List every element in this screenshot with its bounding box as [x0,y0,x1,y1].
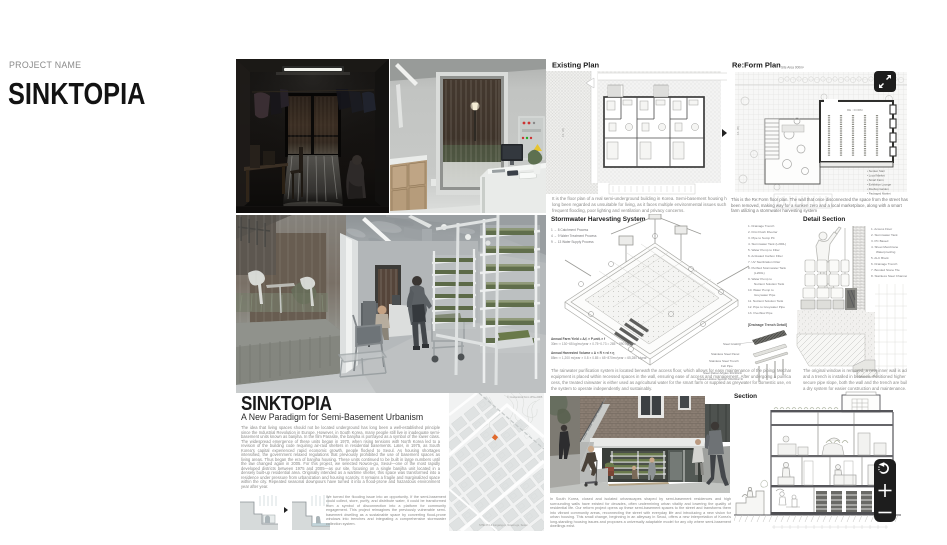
svg-text:9. Water Pump to: 9. Water Pump to [748,277,772,281]
svg-text:30m² × 130~65 kg/m²/year × 0.7: 30m² × 130~65 kg/m²/year × 0.75~0.73 = 2… [551,342,637,346]
svg-text:Re:Form Plan: Re:Form Plan [732,61,781,70]
svg-text:RE : FORM: RE : FORM [847,108,863,112]
svg-text:Stainless Steel Trench: Stainless Steel Trench [709,359,739,363]
svg-text:1. Access Floor: 1. Access Floor [871,227,892,231]
svg-text:11. Nutrient Solution Tank: 11. Nutrient Solution Tank [748,299,784,303]
svg-text:2. First Flush Diverter: 2. First Flush Diverter [748,230,778,234]
svg-text:• Sunken Stair: • Sunken Stair [867,169,885,173]
svg-text:6. Drainage Trench: 6. Drainage Trench [871,262,898,266]
svg-text:• Exhibition Lounge: • Exhibition Lounge [867,183,891,187]
svg-text:4 → 9 Water Treatment Proce: 4 → 9 Water Treatment Process [551,234,597,238]
svg-text:© Customized from JPG+2005: © Customized from JPG+2005 [507,395,543,399]
svg-text:secure pipe slope, both the wa: secure pipe slope, both the wall and the… [803,380,907,385]
svg-text:Site Area 000m²: Site Area 000m² [781,66,804,70]
svg-text:Stainless Steel Panel: Stainless Steel Panel [711,352,740,356]
svg-text:10. Water Pump to: 10. Water Pump to [748,288,774,292]
svg-text:• Smart Farm: • Smart Farm [867,178,884,182]
svg-text:Detail Section: Detail Section [803,216,845,223]
svg-text:Stormwater Harvesting System: Stormwater Harvesting System [551,216,646,223]
svg-text:3. Pipe to Sump Pit: 3. Pipe to Sump Pit [748,236,775,240]
svg-text:85m² × 1,200 m/year × 0.8 × 0.: 85m² × 1,200 m/year × 0.8 × 0.85 = 65~87… [551,356,648,360]
svg-text:• Local Market: • Local Market [867,174,885,178]
svg-text:1. Drainage Trench: 1. Drainage Trench [748,224,775,228]
svg-text:SITE 274-1 Jungang-ro, Nowon-g: SITE 274-1 Jungang-ro, Nowon-gu, Seoul [479,523,528,527]
svg-text:• Rooftop Garden: • Rooftop Garden [867,187,889,191]
svg-text:13. Overflow Pipe: 13. Overflow Pipe [748,311,773,315]
svg-text:16. W): 16. W) [561,128,565,137]
svg-text:Waterproofing: Waterproofing [876,250,896,254]
svg-text:9 → 13 Water Supply Process: 9 → 13 Water Supply Process [551,240,594,244]
svg-text:and a trench is installed in b: and a trench is installed in between. Po… [803,374,907,379]
svg-text:Annual Harvested Volume = A ×: Annual Harvested Volume = A × R × rd × η [551,351,614,355]
svg-text:long been regarded as unsuitab: long been regarded as unsuitable for liv… [552,202,727,207]
svg-text:8. Purified Stormwater Tank: 8. Purified Stormwater Tank [748,266,786,270]
svg-text:Existing Plan: Existing Plan [552,61,600,70]
svg-text:cess, the treated rainwater is: cess, the treated rainwater is either us… [551,380,791,385]
svg-text:It is the floor plan of a real: It is the floor plan of a real semi-unde… [552,196,727,201]
svg-text:Section: Section [734,393,757,400]
svg-text:16. W): 16. W) [736,126,740,135]
svg-text:4. Stormwater Tank (L200L): 4. Stormwater Tank (L200L) [748,242,786,246]
svg-text:8. Stainless Steel Channel: 8. Stainless Steel Channel [871,274,907,278]
svg-text:[Drainage Trench Detail]: [Drainage Trench Detail] [748,323,787,327]
svg-text:6. Activated Carbon Filter: 6. Activated Carbon Filter [748,254,783,258]
svg-text:5. ALC Block: 5. ALC Block [871,256,889,260]
svg-text:7. UV Sterilization Filter: 7. UV Sterilization Filter [748,260,780,264]
svg-text:• Packaged Market: • Packaged Market [867,192,891,196]
svg-text:equipment is placed within rec: equipment is placed within recessed spac… [551,374,791,379]
svg-text:The rainwater purification sys: The rainwater purification system is loc… [551,368,791,373]
svg-text:2. Stormwater Tank: 2. Stormwater Tank [871,233,898,237]
svg-text:Nutrient Solution Tank: Nutrient Solution Tank [754,282,785,286]
svg-text:4. Sheet Membrane: 4. Sheet Membrane [871,245,898,249]
svg-text:frequent flooding, poor lighti: frequent flooding, poor lighting and ven… [552,208,685,213]
svg-text:the system to operate independ: the system to operate independently and … [551,386,652,391]
svg-text:Annual Farm Yield = A₍f₎ × P₍u: Annual Farm Yield = A₍f₎ × P₍unit₎ × f [551,337,606,341]
svg-text:7. Bonded Stone Tile: 7. Bonded Stone Tile [871,268,900,272]
svg-text:The original window is removed: The original window is removed, a new in… [803,368,907,373]
svg-text:5. Water Pump to Filter: 5. Water Pump to Filter [748,248,780,252]
svg-text:1 → 8 Catchment Process: 1 → 8 Catchment Process [551,228,589,232]
svg-text:3. PC Based: 3. PC Based [871,239,889,243]
svg-text:12. Pipe to Greywater Pipe: 12. Pipe to Greywater Pipe [748,305,785,309]
svg-text:(L200L): (L200L) [754,271,765,275]
svg-text:Greywater Pipe: Greywater Pipe [754,293,776,297]
